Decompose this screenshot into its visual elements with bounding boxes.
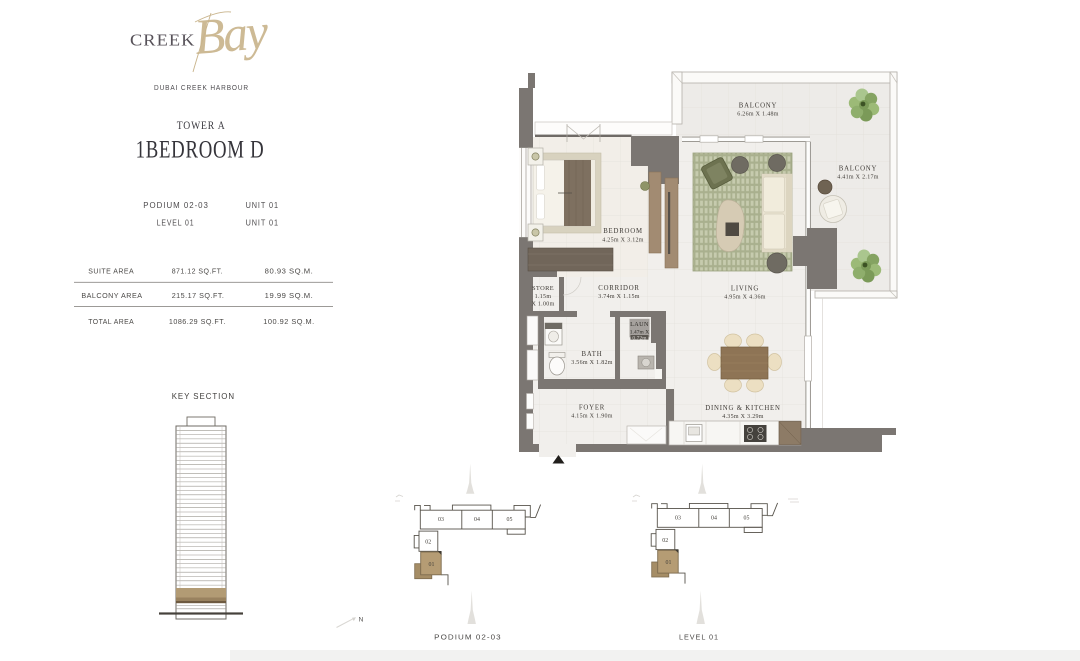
svg-text:X 1.00m: X 1.00m [531, 302, 554, 308]
svg-text:1086.29 SQ.FT.: 1086.29 SQ.FT. [169, 317, 226, 326]
svg-text:BEDROOM: BEDROOM [603, 228, 643, 235]
svg-text:80.93 SQ.M.: 80.93 SQ.M. [265, 267, 314, 276]
svg-text:FOYER: FOYER [579, 405, 605, 412]
svg-text:STORE: STORE [532, 285, 554, 292]
svg-text:Bay: Bay [192, 3, 271, 65]
svg-text:BALCONY AREA: BALCONY AREA [81, 291, 143, 300]
svg-text:DINING & KITCHEN: DINING & KITCHEN [705, 405, 780, 412]
svg-text:CORRIDOR: CORRIDOR [598, 285, 640, 292]
svg-text:DUBAI CREEK HARBOUR: DUBAI CREEK HARBOUR [154, 83, 249, 92]
svg-text:UNIT 01: UNIT 01 [246, 219, 279, 228]
svg-text:02: 02 [425, 540, 431, 546]
svg-text:04: 04 [474, 517, 480, 523]
svg-text:BATH: BATH [582, 351, 603, 358]
svg-text:0.72m: 0.72m [632, 335, 647, 341]
svg-text:4.41m X 2.17m: 4.41m X 2.17m [837, 175, 879, 181]
svg-text:KEY SECTION: KEY SECTION [172, 392, 235, 401]
svg-text:3.74m X 1.15m: 3.74m X 1.15m [598, 294, 640, 300]
svg-text:871.12 SQ.FT.: 871.12 SQ.FT. [172, 267, 223, 276]
svg-text:3.56m X 1.82m: 3.56m X 1.82m [571, 360, 613, 366]
svg-text:LEVEL 01: LEVEL 01 [679, 633, 719, 642]
svg-text:LEVEL 01: LEVEL 01 [157, 219, 195, 228]
svg-text:PODIUM 02-03: PODIUM 02-03 [434, 633, 502, 642]
svg-text:TOTAL AREA: TOTAL AREA [88, 317, 134, 326]
svg-text:LIVING: LIVING [731, 286, 759, 293]
svg-text:1BEDROOM D: 1BEDROOM D [136, 135, 265, 164]
svg-text:TOWER A: TOWER A [177, 120, 226, 132]
svg-text:4.25m X 3.12m: 4.25m X 3.12m [602, 238, 644, 244]
svg-text:01: 01 [429, 562, 435, 568]
svg-text:PODIUM 02-03: PODIUM 02-03 [143, 201, 209, 210]
svg-text:4.95m X 4.36m: 4.95m X 4.36m [724, 295, 766, 301]
svg-text:19.99 SQ.M.: 19.99 SQ.M. [265, 291, 314, 300]
svg-text:BALCONY: BALCONY [839, 166, 877, 173]
svg-text:1.15m: 1.15m [535, 294, 552, 300]
svg-text:215.17 SQ.FT.: 215.17 SQ.FT. [172, 291, 225, 300]
svg-text:LAUN: LAUN [630, 321, 649, 328]
svg-text:CREEK: CREEK [130, 31, 196, 50]
svg-text:BALCONY: BALCONY [739, 103, 777, 110]
svg-text:4.15m X 1.90m: 4.15m X 1.90m [571, 414, 613, 420]
svg-text:4.35m X 3.29m: 4.35m X 3.29m [722, 414, 764, 420]
svg-text:03: 03 [438, 517, 444, 523]
svg-text:100.92 SQ.M.: 100.92 SQ.M. [263, 317, 314, 326]
svg-text:SUITE AREA: SUITE AREA [88, 267, 134, 276]
svg-text:05: 05 [507, 517, 513, 523]
svg-text:N: N [359, 617, 364, 624]
svg-text:UNIT 01: UNIT 01 [246, 201, 279, 210]
svg-text:6.26m X 1.48m: 6.26m X 1.48m [737, 112, 779, 118]
